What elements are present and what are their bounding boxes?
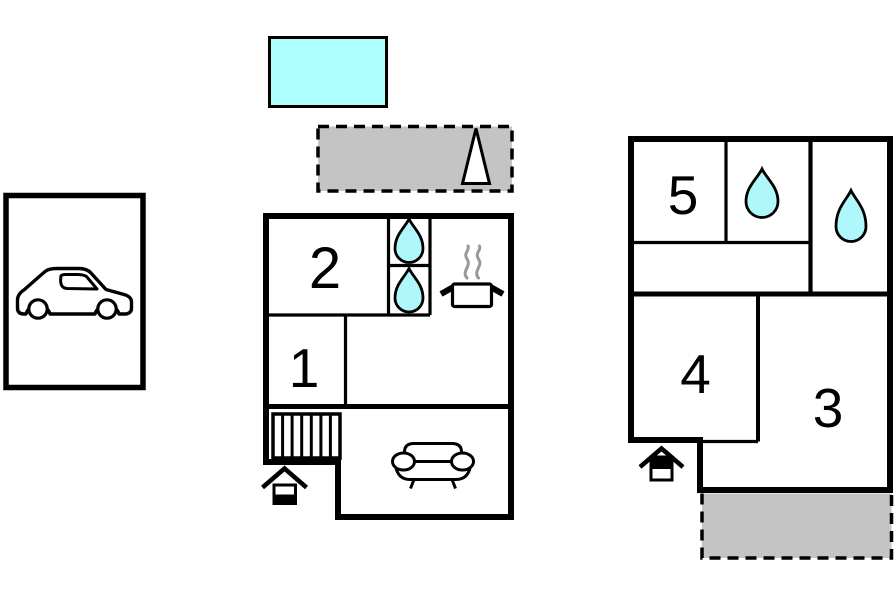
pot-body <box>453 284 492 307</box>
room-5-label: 5 <box>668 164 699 226</box>
floorplan-page: 2 1 <box>0 0 896 597</box>
stairs-icon <box>273 414 340 458</box>
room-3-label: 3 <box>813 377 844 439</box>
annex-building: 5 4 3 <box>628 139 890 490</box>
terrace-area-top <box>318 127 512 192</box>
garage <box>6 196 143 388</box>
room-2-label: 2 <box>309 236 341 301</box>
main-building: 2 1 <box>263 216 512 517</box>
room-4-label: 4 <box>680 343 711 405</box>
floorplan-canvas: 2 1 <box>0 0 896 597</box>
room-1-label: 1 <box>289 337 320 399</box>
pool <box>270 38 387 107</box>
entrance-arrow-icon <box>640 449 683 481</box>
terrace-area-bottom <box>702 494 892 559</box>
entrance-arrow-icon <box>263 469 307 505</box>
